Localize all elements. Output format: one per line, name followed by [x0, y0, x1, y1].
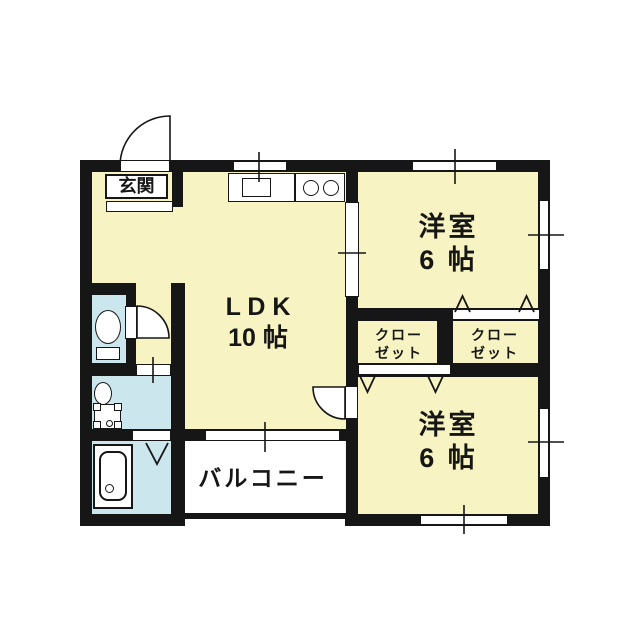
- closet-right-fold-mark-1: [455, 296, 470, 312]
- closet-right-fold-mark-2: [519, 296, 534, 312]
- closet-left-line2: ゼット: [362, 344, 436, 362]
- entrance-door-arc: [120, 116, 170, 166]
- closet-left-fold-mark-2: [428, 376, 443, 392]
- genkan-label: 玄関: [105, 174, 168, 199]
- bedroom-top-size: 6 帖: [386, 244, 511, 277]
- ldk-name: L D K: [188, 292, 328, 323]
- closet-left-fold-mark-1: [360, 376, 375, 392]
- ldk-label: L D K 10 帖: [188, 292, 328, 354]
- bedroom-top-name: 洋室: [386, 211, 511, 244]
- floorplan: 玄関 L D K 10 帖 洋室 6 帖 洋室 6 帖 クロー ゼット クロー …: [0, 0, 640, 640]
- closet-left-label: クロー ゼット: [362, 326, 436, 362]
- bedroom-top-label: 洋室 6 帖: [386, 211, 511, 277]
- balcony-label: バルコニー: [180, 464, 346, 492]
- closet-right-line1: クロー: [458, 326, 532, 344]
- toilet-door-swing: [137, 306, 169, 338]
- ldk-size: 10 帖: [188, 323, 328, 354]
- closet-right-line2: ゼット: [458, 344, 532, 362]
- bedroom-bottom-name: 洋室: [386, 409, 511, 442]
- closet-left-line1: クロー: [362, 326, 436, 344]
- bedroom-bottom-door-swing: [313, 387, 345, 419]
- closet-right-label: クロー ゼット: [458, 326, 532, 362]
- bedroom-bottom-label: 洋室 6 帖: [386, 409, 511, 475]
- bathroom-folding-door-mark: [146, 443, 168, 464]
- bedroom-bottom-size: 6 帖: [386, 442, 511, 475]
